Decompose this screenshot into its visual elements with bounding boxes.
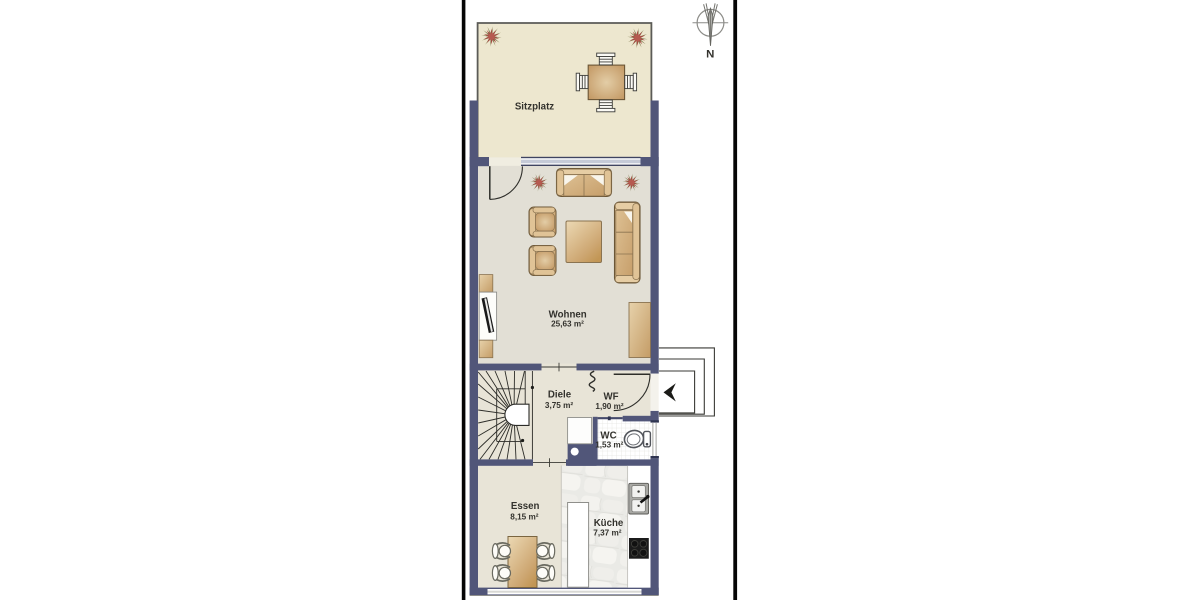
svg-text:Küche: Küche [594,518,624,529]
svg-text:Essen: Essen [511,501,540,512]
svg-text:N: N [706,49,714,61]
svg-text:8,15 m²: 8,15 m² [510,512,538,521]
svg-text:WF: WF [603,392,618,403]
svg-text:1,90 m²: 1,90 m² [595,402,623,411]
svg-text:3,75 m²: 3,75 m² [545,401,573,410]
svg-text:1,53 m²: 1,53 m² [595,441,623,450]
svg-text:25,63 m²: 25,63 m² [551,320,584,329]
svg-text:Diele: Diele [548,390,572,401]
svg-text:Sitzplatz: Sitzplatz [515,101,554,112]
svg-text:7,37 m²: 7,37 m² [593,528,621,537]
